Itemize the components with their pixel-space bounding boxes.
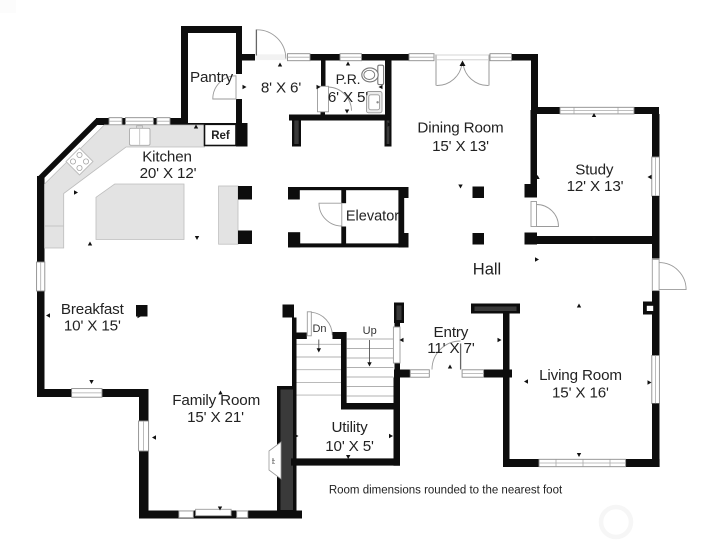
svg-text:10' X 5': 10' X 5' — [325, 438, 374, 455]
svg-text:Dn: Dn — [312, 323, 326, 335]
svg-text:Elevator: Elevator — [346, 209, 399, 225]
svg-text:Family Room: Family Room — [172, 392, 260, 409]
svg-text:Kitchen: Kitchen — [142, 149, 192, 166]
svg-text:Room dimensions rounded to the: Room dimensions rounded to the nearest f… — [329, 485, 563, 497]
svg-text:Breakfast: Breakfast — [61, 301, 125, 318]
svg-text:20' X 12': 20' X 12' — [140, 165, 197, 182]
svg-text:Dining Room: Dining Room — [417, 120, 503, 137]
svg-text:FP: FP — [271, 458, 276, 464]
svg-text:Study: Study — [575, 162, 614, 179]
svg-text:11' X 7': 11' X 7' — [427, 340, 475, 357]
svg-text:15' X 21': 15' X 21' — [187, 409, 244, 426]
svg-text:6' X 5': 6' X 5' — [328, 89, 368, 106]
svg-text:P.R.: P.R. — [336, 71, 361, 87]
svg-text:Up: Up — [363, 325, 377, 337]
svg-text:Hall: Hall — [473, 261, 501, 279]
svg-text:12' X 13': 12' X 13' — [567, 178, 624, 195]
svg-text:Utility: Utility — [331, 419, 368, 436]
svg-text:15' X 13': 15' X 13' — [432, 138, 489, 155]
svg-text:Entry: Entry — [434, 324, 469, 341]
svg-text:8' X 6': 8' X 6' — [261, 80, 301, 97]
svg-text:Living Room: Living Room — [539, 367, 622, 384]
svg-text:15' X 16': 15' X 16' — [552, 385, 609, 402]
svg-text:Ref: Ref — [211, 130, 230, 142]
svg-text:10' X 15': 10' X 15' — [64, 317, 121, 334]
svg-text:Pantry: Pantry — [190, 69, 234, 86]
